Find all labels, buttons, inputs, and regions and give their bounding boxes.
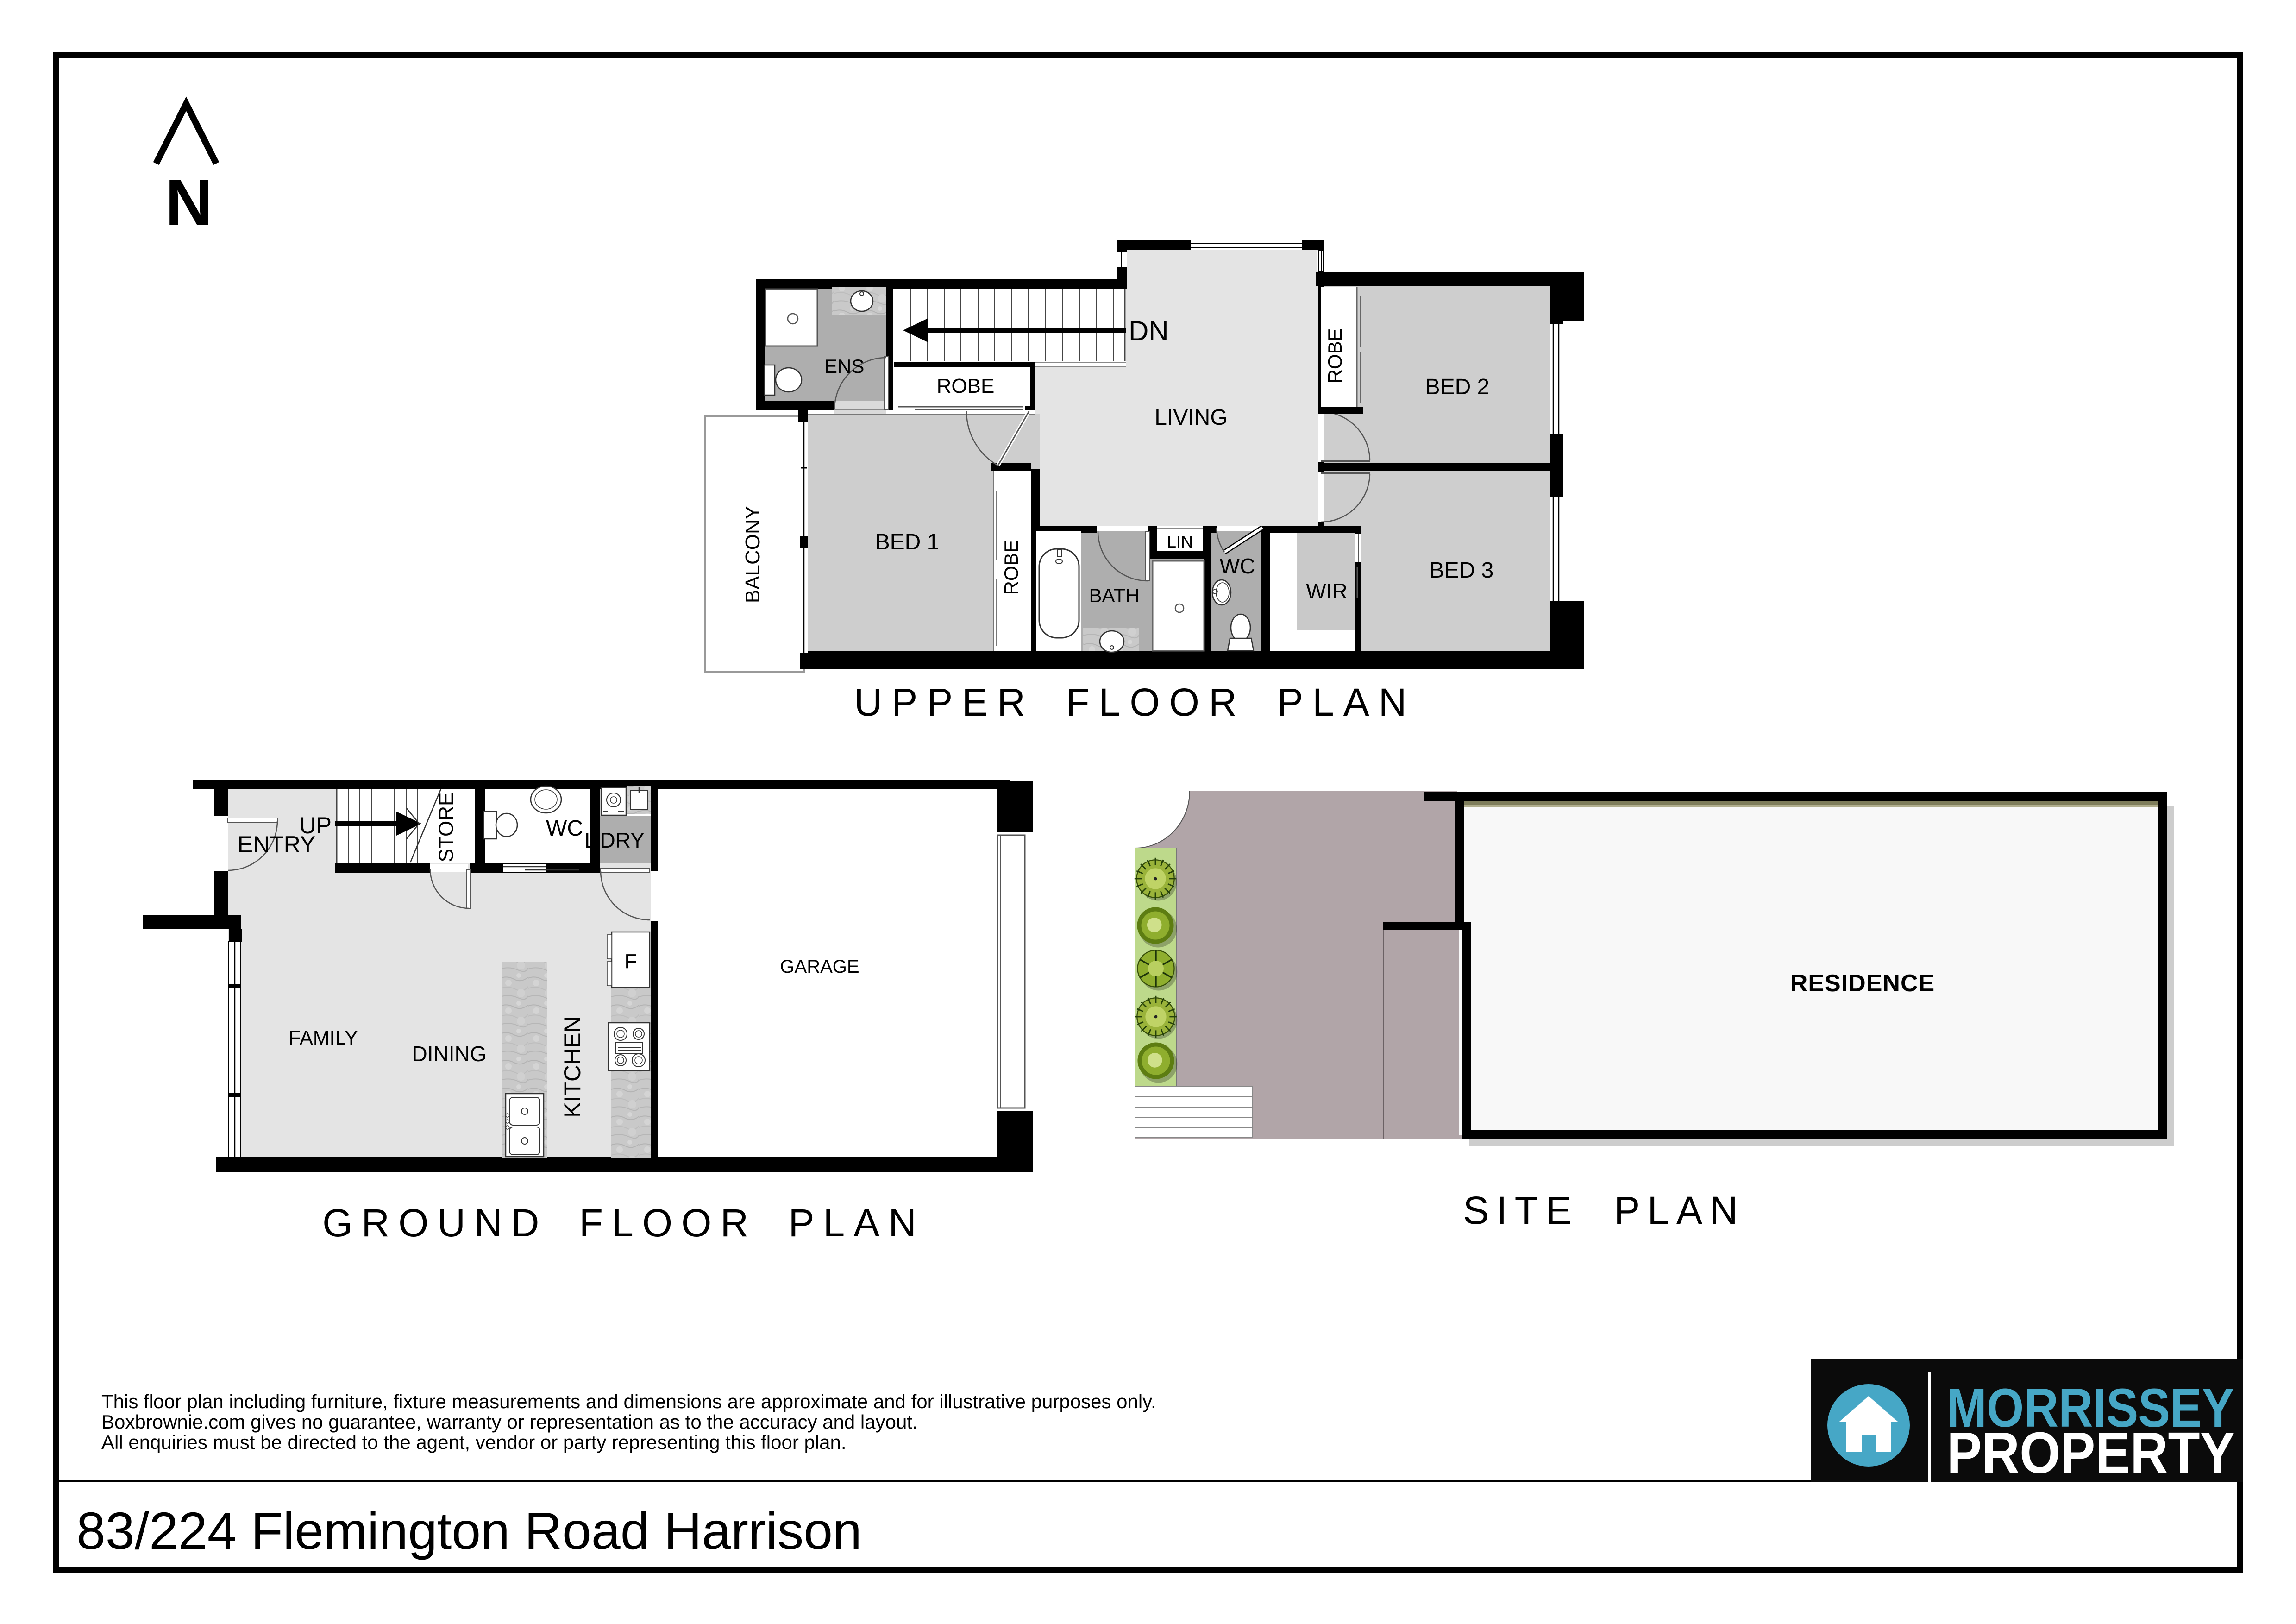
svg-text:83/224 Flemington Road Harriso: 83/224 Flemington Road Harrison [76,1502,862,1560]
svg-text:UPPER FLOOR PLAN: UPPER FLOOR PLAN [854,680,1416,724]
svg-text:BED 2: BED 2 [1425,375,1490,399]
svg-text:BED 3: BED 3 [1430,558,1494,583]
svg-text:RESIDENCE: RESIDENCE [1790,970,1935,997]
svg-text:PROPERTY: PROPERTY [1947,1420,2235,1486]
svg-text:UP: UP [300,812,332,838]
svg-text:ROBE: ROBE [1000,540,1022,595]
svg-text:STORE: STORE [435,793,458,862]
svg-text:WIR: WIR [1306,579,1347,603]
svg-text:ROBE: ROBE [1324,328,1346,383]
svg-text:KITCHEN: KITCHEN [559,1016,585,1117]
svg-text:ENS: ENS [824,355,864,377]
svg-text:LIVING: LIVING [1154,405,1227,430]
svg-text:L’DRY: L’DRY [584,828,645,852]
svg-text:SITE PLAN: SITE PLAN [1463,1189,1745,1232]
svg-text:BATH: BATH [1089,585,1140,606]
svg-text:DINING: DINING [412,1042,487,1066]
svg-text:This floor plan including furn: This floor plan including furniture, fix… [101,1391,1156,1412]
svg-text:N: N [165,166,213,239]
svg-text:All enquiries must be directed: All enquiries must be directed to the ag… [101,1431,847,1453]
svg-text:ROBE: ROBE [937,375,995,397]
svg-text:BALCONY: BALCONY [741,506,764,603]
svg-text:GROUND FLOOR PLAN: GROUND FLOOR PLAN [322,1201,925,1245]
svg-text:Boxbrownie.com gives no guaran: Boxbrownie.com gives no guarantee, warra… [101,1411,918,1433]
svg-text:GARAGE: GARAGE [780,957,859,977]
svg-text:BED 1: BED 1 [875,530,940,554]
svg-text:WC: WC [1220,554,1255,578]
svg-text:FAMILY: FAMILY [289,1027,358,1049]
svg-text:DN: DN [1129,315,1169,346]
svg-text:WC: WC [546,816,583,841]
svg-text:LIN: LIN [1167,532,1193,551]
svg-text:F: F [625,950,637,973]
